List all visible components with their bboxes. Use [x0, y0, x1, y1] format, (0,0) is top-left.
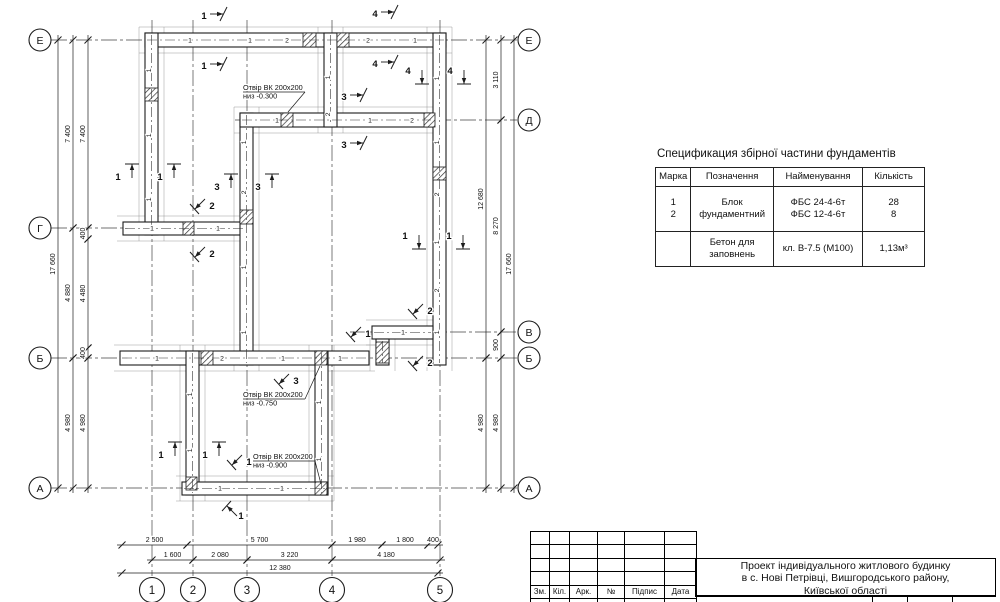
section-marker: 4	[372, 5, 398, 20]
opening-note: Отвір ВК 200х200низ -0.300	[243, 83, 305, 112]
dim-label: 4 980	[493, 414, 500, 432]
section-marker-number: 1	[365, 329, 371, 340]
note-line2: низ -0.750	[243, 399, 277, 408]
block-number: 2	[325, 112, 332, 116]
block-number: 1	[316, 400, 323, 404]
section-marker: 3	[274, 374, 299, 389]
block-number: 1	[248, 37, 252, 44]
block-number: 1	[187, 392, 194, 396]
dimension-chain-horizontal: 1 6002 0803 2204 180	[147, 552, 445, 563]
section-marker-number: 3	[214, 182, 219, 193]
axis-bubble-2: 2	[181, 578, 206, 602]
block-number: 2	[241, 190, 248, 194]
section-marker-number: 1	[201, 61, 207, 72]
arrowhead	[357, 141, 363, 145]
axis-bubble-4: 4	[320, 578, 345, 602]
section-marker: 4	[447, 66, 471, 84]
section-marker: 1	[201, 7, 227, 22]
arrowhead	[217, 12, 223, 16]
spec-cell-kilkist: 28 8	[863, 187, 925, 232]
tb-col-zm: Зм.	[531, 586, 550, 599]
dim-label: 4 980	[65, 414, 72, 432]
section-marker-number: 1	[402, 231, 408, 242]
block-number: 1	[218, 485, 222, 492]
dim-label: 12 680	[478, 188, 485, 210]
tb-divider	[872, 597, 873, 602]
project-title-line: Проект індивідуального житлового будинку	[696, 560, 995, 572]
block-number: 1	[150, 225, 154, 232]
section-marker-number: 3	[341, 140, 346, 151]
dim-label: 5 700	[251, 537, 269, 544]
block-number: 1	[434, 76, 441, 80]
block-number: 1	[280, 485, 284, 492]
axis-bubble-1: 1	[140, 578, 165, 602]
block-number: 1	[434, 240, 441, 244]
axis-bubble-label: 2	[190, 585, 196, 597]
dim-label: 17 660	[50, 253, 57, 275]
spec-cell-poznachennya: Блок фундаментний	[691, 187, 773, 232]
section-marker-number: 4	[405, 66, 411, 77]
spec-header-kilkist: Кількість	[863, 168, 925, 187]
dim-label: 3 110	[493, 71, 500, 88]
section-marker-number: 3	[293, 376, 298, 387]
spec-row: Бетон для заповнень кл. В-7.5 (М100) 1,1…	[656, 232, 925, 267]
foundation-plan: 17 6607 4004 8804 9807 4004004 4804004 9…	[0, 0, 560, 602]
dimension-chain-vertical: 12 6804 980	[478, 35, 490, 493]
section-marker-number: 1	[115, 172, 121, 183]
axis-bubble-А: А	[29, 477, 51, 499]
axis-bubble-Б: Б	[518, 347, 540, 369]
section-marker: 3	[214, 174, 238, 193]
block-number: 2	[285, 37, 289, 44]
wall-centerlines	[122, 35, 444, 493]
section-marker: 1	[115, 164, 139, 183]
section-marker-number: 1	[201, 11, 207, 22]
section-marker-number: 1	[246, 457, 252, 468]
dim-label: 4 480	[80, 285, 87, 303]
axis-bubble-label: 5	[437, 585, 443, 597]
note-line2: низ -0.300	[243, 92, 277, 101]
specification-table: Спецификация збірної частини фундаментів…	[655, 148, 925, 267]
block-number: 1	[275, 117, 279, 124]
spec-cell-marka: 1 2	[656, 187, 691, 232]
arrowhead	[229, 174, 233, 180]
section-marker-number: 4	[372, 59, 378, 70]
axis-bubble-Е: Е	[29, 29, 51, 51]
dim-label: 400	[80, 347, 87, 359]
section-marker: 4	[372, 55, 398, 70]
axis-bubble-label: Б	[37, 353, 44, 365]
axis-bubble-label: Е	[36, 35, 43, 47]
block-number: 1	[316, 457, 323, 461]
axis-bubble-label: А	[525, 483, 532, 495]
tb-col-pidpys: Підпис	[625, 586, 665, 599]
block-number: 2	[220, 355, 224, 362]
axis-bubble-label: Д	[525, 115, 532, 127]
block-number: 1	[413, 37, 417, 44]
section-marker: 1	[346, 327, 371, 342]
block-number: 1	[241, 330, 248, 334]
section-marker: 3	[341, 88, 367, 103]
footing-outlines	[114, 27, 452, 501]
axis-bubble-label: Е	[525, 35, 532, 47]
spec-cell-naimenuvannya: ФБС 24-4-6т ФБС 12-4-6т	[773, 187, 862, 232]
opening-note: Отвір ВК 200х200низ -0.900	[253, 452, 321, 484]
block-number: 1	[434, 330, 441, 334]
axis-bubble-label: Г	[37, 223, 43, 235]
section-marker: 1	[402, 231, 426, 249]
arrowhead	[357, 93, 363, 97]
axis-bubble-Е: Е	[518, 29, 540, 51]
section-marker: 1	[158, 442, 182, 461]
project-title-line: в с. Нові Петрівці, Вишгородського район…	[696, 572, 995, 584]
tb-divider	[907, 597, 908, 602]
block-number: 1	[155, 355, 159, 362]
spec-cell-marka	[656, 232, 691, 267]
axis-bubble-label: В	[525, 327, 532, 339]
section-marker-number: 3	[255, 182, 260, 193]
spec-header-poznachennya: Позначення	[691, 168, 773, 187]
dim-label: 1 800	[396, 537, 414, 544]
dim-label: 7 400	[80, 125, 87, 143]
dim-label: 8 270	[493, 217, 500, 235]
axis-bubble-label: 4	[329, 585, 336, 597]
section-marker-number: 4	[447, 66, 453, 77]
dim-label: 2 500	[146, 537, 164, 544]
dimension-chain-horizontal: 12 380	[117, 565, 443, 576]
block-number: 1	[338, 355, 342, 362]
section-marker: 1	[202, 442, 226, 461]
axis-bubble-Б: Б	[29, 347, 51, 369]
opening-hatch	[186, 477, 197, 490]
arrowhead	[270, 174, 274, 180]
arrowhead	[130, 164, 134, 170]
spec-title: Спецификация збірної частини фундаментів	[657, 148, 925, 160]
arrowhead	[217, 442, 221, 448]
section-marker: 2	[190, 199, 215, 214]
dim-label: 1 980	[348, 537, 366, 544]
arrowhead	[417, 243, 421, 249]
section-marker-number: 1	[446, 231, 452, 242]
axis-bubble-3: 3	[235, 578, 260, 602]
arrowhead	[388, 10, 394, 14]
dim-label: 7 400	[65, 125, 72, 143]
dimension-chain-vertical: 17 660	[50, 35, 62, 493]
arrowhead	[388, 60, 394, 64]
dim-label: 400	[427, 537, 439, 544]
dimension-chain-vertical: 17 660	[506, 35, 518, 493]
walls	[120, 33, 446, 495]
note-leader	[288, 92, 305, 112]
block-number: 1	[146, 133, 153, 137]
title-block-revision-grid: Зм. Кіл. Арк. № Підпис Дата	[530, 531, 697, 602]
tb-col-data: Дата	[665, 586, 696, 599]
block-number: 1	[241, 265, 248, 269]
block-number: 1	[188, 37, 192, 44]
section-marker: 1	[201, 57, 227, 72]
tb-col-ark: Арк.	[570, 586, 598, 599]
tb-col-no: №	[598, 586, 625, 599]
spec-cell-poznachennya: Бетон для заповнень	[691, 232, 773, 267]
block-number: 1	[241, 140, 248, 144]
dim-label: 4 880	[65, 284, 72, 302]
spec-header-marka: Марка	[656, 168, 691, 187]
block-number: 1	[434, 140, 441, 144]
axis-bubble-label: Б	[526, 353, 533, 365]
arrowhead	[462, 78, 466, 84]
spec-grid: Марка Позначення Найменування Кількість …	[655, 167, 925, 267]
axis-bubble-5: 5	[428, 578, 453, 602]
axis-bubble-label: А	[36, 483, 43, 495]
section-marker-number: 1	[202, 450, 208, 461]
section-marker-number: 2	[427, 358, 432, 369]
axis-bubble-В: В	[518, 321, 540, 343]
section-marker-number: 3	[341, 92, 346, 103]
block-number: 1	[187, 448, 194, 452]
spec-header-naimenuvannya: Найменування	[773, 168, 862, 187]
dim-label: 2 080	[211, 552, 229, 559]
block-number: 1	[146, 197, 153, 201]
axis-bubble-Г: Г	[29, 217, 51, 239]
note-line2: низ -0.900	[253, 461, 287, 470]
axis-bubble-label: 1	[149, 585, 155, 597]
dimension-chain-vertical: 7 4004004 4804004 980	[80, 35, 92, 493]
section-marker: 1	[227, 455, 252, 470]
section-marker-number: 2	[427, 306, 432, 317]
dim-label: 900	[493, 339, 500, 351]
block-number: 2	[366, 37, 370, 44]
section-marker: 1	[222, 501, 244, 522]
section-marker-number: 2	[209, 201, 214, 212]
dimension-chain-vertical: 7 4004 8804 980	[65, 35, 77, 493]
arrowhead	[420, 78, 424, 84]
tb-divider	[952, 597, 953, 602]
spec-cell-kilkist: 1,13м³	[863, 232, 925, 267]
axis-bubble-Д: Д	[518, 109, 540, 131]
block-number: 2	[410, 117, 414, 124]
spec-cell-naimenuvannya: кл. В-7.5 (М100)	[773, 232, 862, 267]
block-number: 1	[401, 329, 405, 336]
dim-label: 1 600	[164, 552, 182, 559]
axis-bubble-label: 3	[244, 585, 250, 597]
block-number: 1	[325, 75, 332, 79]
dim-label: 4 980	[478, 414, 485, 432]
block-number: 1	[216, 225, 220, 232]
block-number: 1	[281, 355, 285, 362]
arrowhead	[172, 164, 176, 170]
arrowhead	[173, 442, 177, 448]
dimension-chain-vertical: 3 1108 2709004 980	[493, 35, 505, 493]
block-number: 2	[434, 192, 441, 196]
dim-label: 4 980	[80, 414, 87, 432]
dimension-chain-horizontal: 2 5005 7001 9801 800400	[117, 537, 443, 548]
dim-label: 4 180	[377, 552, 395, 559]
dim-label: 17 660	[506, 253, 513, 275]
block-number: 1	[146, 68, 153, 72]
section-marker: 3	[341, 136, 367, 151]
project-title: Проект індивідуального житлового будинку…	[695, 558, 996, 596]
title-block: Зм. Кіл. Арк. № Підпис Дата Проект індив…	[528, 531, 1000, 602]
title-block-bottom-row	[695, 596, 996, 602]
section-marker: 2	[190, 247, 215, 262]
spec-row: 1 2 Блок фундаментний ФБС 24-4-6т ФБС 12…	[656, 187, 925, 232]
arrowhead	[461, 243, 465, 249]
section-marker-number: 4	[372, 9, 378, 20]
section-marker-number: 1	[238, 511, 244, 522]
leader-notes: Отвір ВК 200х200низ -0.300Отвір ВК 200х2…	[243, 83, 321, 484]
tb-col-kil: Кіл.	[550, 586, 570, 599]
section-marker: 4	[405, 66, 429, 84]
section-marker: 2	[408, 304, 433, 319]
block-number: 2	[434, 288, 441, 292]
drawing-sheet: 17 6607 4004 8804 9807 4004004 4804004 9…	[0, 0, 1000, 602]
block-number: 1	[368, 117, 372, 124]
section-marker: 1	[157, 164, 181, 183]
section-marker: 1	[446, 231, 470, 249]
section-marker-number: 1	[157, 172, 163, 183]
section-marker-number: 2	[209, 249, 214, 260]
axis-bubble-А: А	[518, 477, 540, 499]
dim-label: 12 380	[269, 565, 291, 572]
dim-label: 3 220	[281, 552, 299, 559]
dim-label: 400	[80, 228, 87, 240]
arrowhead	[217, 62, 223, 66]
section-marker-number: 1	[158, 450, 164, 461]
